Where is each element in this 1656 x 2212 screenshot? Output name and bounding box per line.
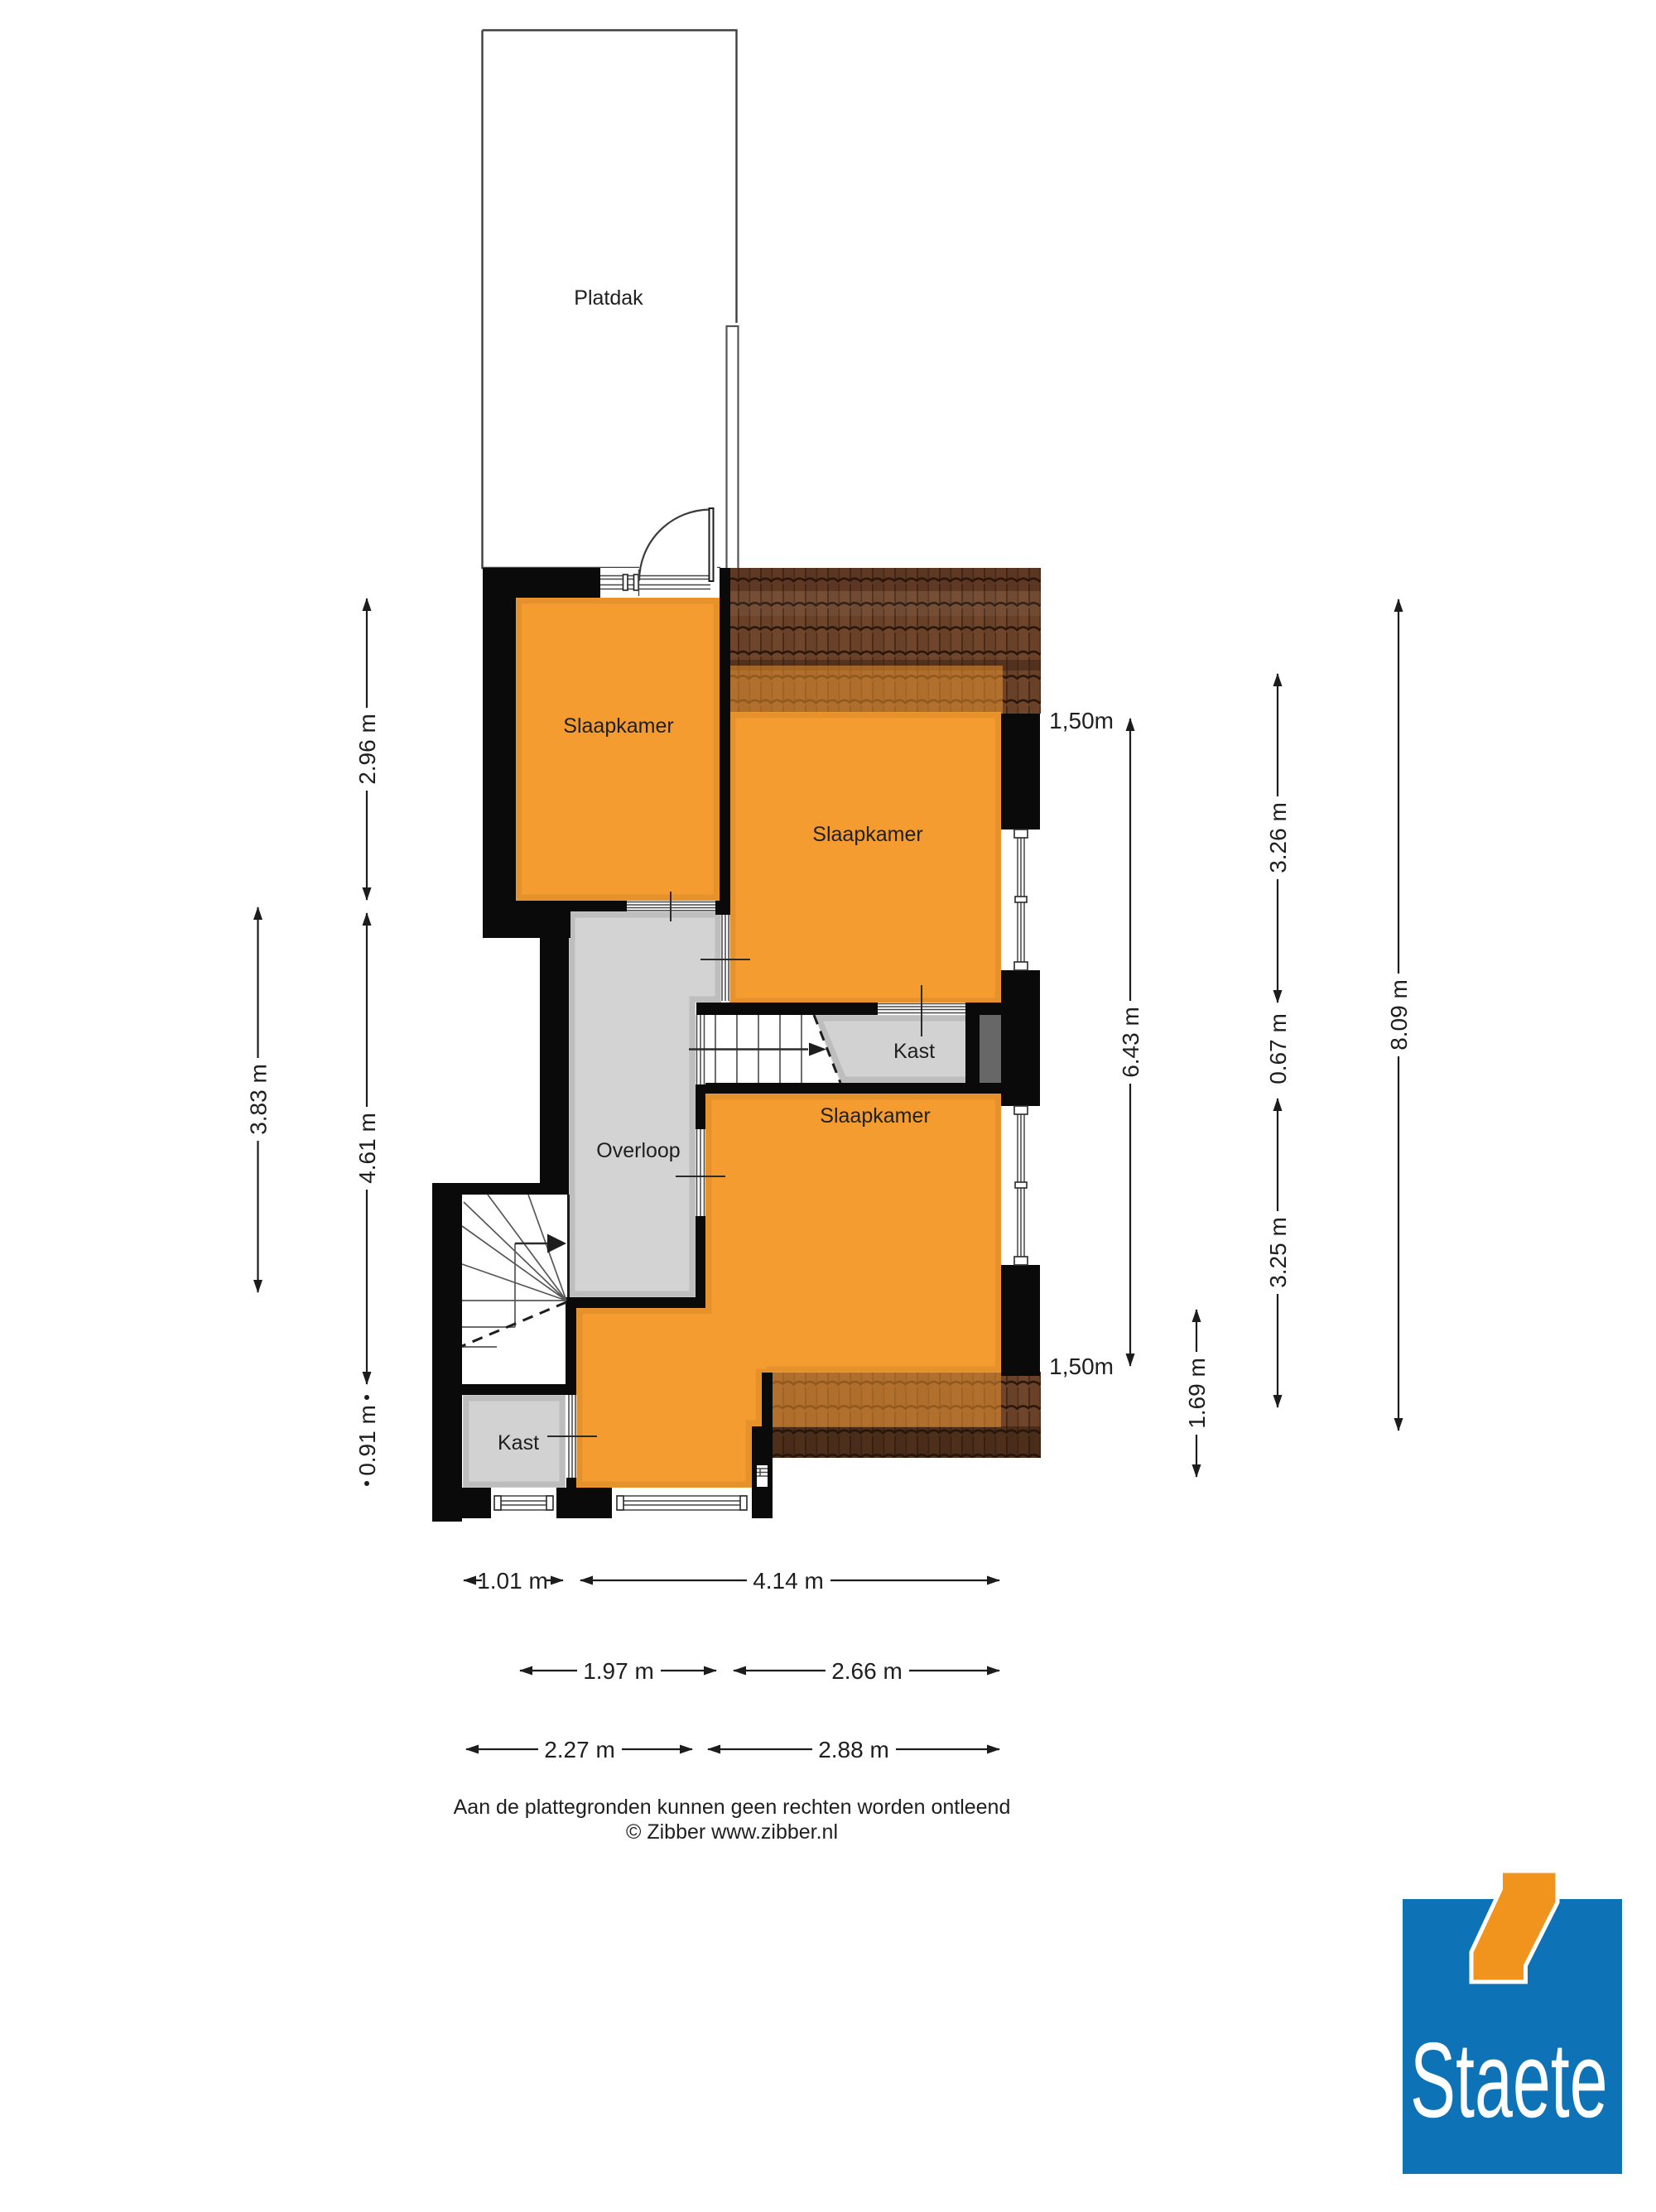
svg-text:2.66 m: 2.66 m [831, 1658, 903, 1684]
svg-text:1.01 m: 1.01 m [477, 1568, 548, 1594]
svg-text:4.61 m: 4.61 m [354, 1113, 380, 1184]
svg-text:Slaapkamer: Slaapkamer [563, 714, 673, 738]
svg-text:2.88 m: 2.88 m [818, 1737, 889, 1762]
svg-text:0.91 m: 0.91 m [354, 1405, 380, 1476]
svg-text:1,50m: 1,50m [1049, 1354, 1114, 1379]
svg-text:1.69 m: 1.69 m [1184, 1358, 1210, 1429]
svg-text:0.67 m: 0.67 m [1265, 1013, 1291, 1084]
svg-text:Kast: Kast [498, 1431, 539, 1455]
svg-text:1,50m: 1,50m [1049, 708, 1114, 733]
svg-text:Staete: Staete [1410, 2020, 1608, 2139]
svg-text:8.09 m: 8.09 m [1386, 979, 1412, 1051]
svg-text:Aan de plattegronden kunnen ge: Aan de plattegronden kunnen geen rechten… [454, 1796, 1011, 1819]
svg-text:Slaapkamer: Slaapkamer [820, 1104, 930, 1128]
svg-text:Overloop: Overloop [596, 1139, 680, 1162]
svg-text:Kast: Kast [893, 1040, 935, 1063]
svg-text:Slaapkamer: Slaapkamer [812, 823, 922, 846]
svg-text:4.14 m: 4.14 m [753, 1568, 824, 1594]
svg-text:2.27 m: 2.27 m [544, 1737, 615, 1762]
svg-text:© Zibber www.zibber.nl: © Zibber www.zibber.nl [626, 1820, 838, 1844]
svg-text:1.97 m: 1.97 m [583, 1658, 654, 1684]
svg-text:6.43 m: 6.43 m [1118, 1007, 1143, 1078]
svg-text:3.26 m: 3.26 m [1265, 802, 1291, 873]
svg-text:Platdak: Platdak [574, 286, 643, 310]
svg-text:3.25 m: 3.25 m [1265, 1217, 1291, 1288]
svg-text:2.96 m: 2.96 m [354, 714, 380, 785]
svg-text:3.83 m: 3.83 m [246, 1064, 272, 1135]
